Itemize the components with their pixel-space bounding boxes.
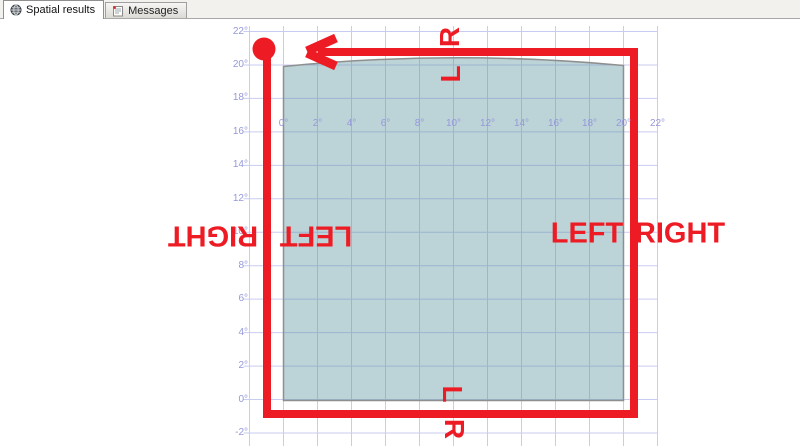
y-axis-tick-label: 2° [238,361,248,371]
globe-icon [10,4,22,16]
tab-spatial-results[interactable]: Spatial results [3,0,104,19]
x-axis-tick-label: 0° [279,119,289,129]
x-axis-tick-label: 4° [347,119,357,129]
path-label-bottom-right-of-travel: R [440,419,468,439]
y-axis-tick-label: 22° [233,27,248,37]
x-axis-tick-label: 6° [381,119,391,129]
path-label-left-edge-right: RIGHT [168,221,258,250]
y-axis-tick-label: 0° [238,395,248,405]
x-axis-tick-label: 20° [616,119,631,129]
y-axis-tick-label: 14° [233,160,248,170]
x-axis-tick-label: 8° [415,119,425,129]
messages-icon [112,5,124,17]
x-axis-tick-label: 14° [514,119,529,129]
tab-messages[interactable]: Messages [105,2,187,18]
path-label-bottom-left-of-travel: L [438,385,466,402]
path-label-left-edge-left: LEFT [280,221,353,250]
x-axis-tick-label: 12° [480,119,495,129]
x-axis-tick-label: 22° [650,119,665,129]
y-axis-tick-label: 6° [238,294,248,304]
x-axis-tick-label: 2° [313,119,323,129]
y-axis-tick-label: -2° [235,428,248,438]
y-axis-tick-label: 20° [233,60,248,70]
y-axis-tick-label: 12° [233,194,248,204]
spatial-results-window: Spatial results Messages 22°20°18°16°14°… [0,0,800,446]
path-label-top-right-of-travel: R [436,27,464,47]
y-axis-tick-label: 8° [238,261,248,271]
path-label-right-edge-left: LEFT [551,220,624,249]
y-axis-tick-label: 16° [233,127,248,137]
tab-label: Spatial results [26,4,95,16]
x-axis-tick-label: 18° [582,119,597,129]
y-axis-tick-label: 18° [233,93,248,103]
x-axis-tick-label: 10° [446,119,461,129]
tab-label: Messages [128,5,178,17]
path-start-marker [253,38,276,61]
path-label-right-edge-right: RIGHT [635,220,725,249]
path-label-top-left-of-travel: L [437,65,465,82]
results-tab-bar: Spatial results Messages [0,0,800,19]
y-axis-tick-label: 4° [238,328,248,338]
x-axis-tick-label: 16° [548,119,563,129]
